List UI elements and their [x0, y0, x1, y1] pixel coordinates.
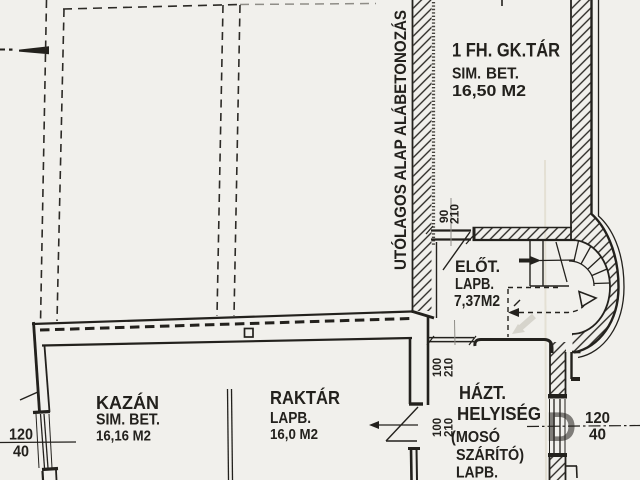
- svg-text:KAZÁN: KAZÁN: [96, 392, 159, 413]
- svg-text:100: 100: [432, 418, 444, 437]
- svg-text:UTÓLAGOS ALAP ALÁBETONOZÁS: UTÓLAGOS ALAP ALÁBETONOZÁS: [391, 10, 410, 270]
- svg-text:BET.: BET.: [486, 66, 519, 83]
- svg-text:RAKTÁR: RAKTÁR: [270, 387, 340, 408]
- svg-text:120: 120: [585, 410, 610, 427]
- svg-text:16,50 M2: 16,50 M2: [452, 83, 526, 100]
- svg-text:SIM. BET.: SIM. BET.: [96, 412, 160, 429]
- svg-text:LAPB.: LAPB.: [456, 465, 498, 480]
- svg-text:ELŐT.: ELŐT.: [455, 257, 500, 276]
- svg-text:SZÁRÍTÓ): SZÁRÍTÓ): [456, 445, 524, 464]
- svg-text:16,16 M2: 16,16 M2: [96, 428, 151, 445]
- svg-text:40: 40: [589, 427, 606, 444]
- svg-text:210: 210: [444, 358, 456, 377]
- svg-text:7,37M2: 7,37M2: [454, 293, 500, 310]
- svg-text:LAPB.: LAPB.: [455, 276, 494, 293]
- svg-text:(MOSÓ: (MOSÓ: [451, 427, 500, 446]
- svg-text:LAPB.: LAPB.: [270, 410, 311, 427]
- svg-text:HELYISÉG: HELYISÉG: [457, 403, 541, 424]
- svg-text:16,0 M2: 16,0 M2: [270, 426, 318, 443]
- svg-text:SIM.: SIM.: [452, 66, 481, 83]
- svg-text:100: 100: [432, 358, 444, 377]
- svg-text:HÁZT.: HÁZT.: [459, 382, 506, 403]
- svg-text:210: 210: [448, 204, 462, 224]
- svg-text:1 FH. GK.TÁR: 1 FH. GK.TÁR: [452, 40, 560, 62]
- svg-text:120: 120: [9, 427, 33, 444]
- svg-text:40: 40: [13, 444, 29, 461]
